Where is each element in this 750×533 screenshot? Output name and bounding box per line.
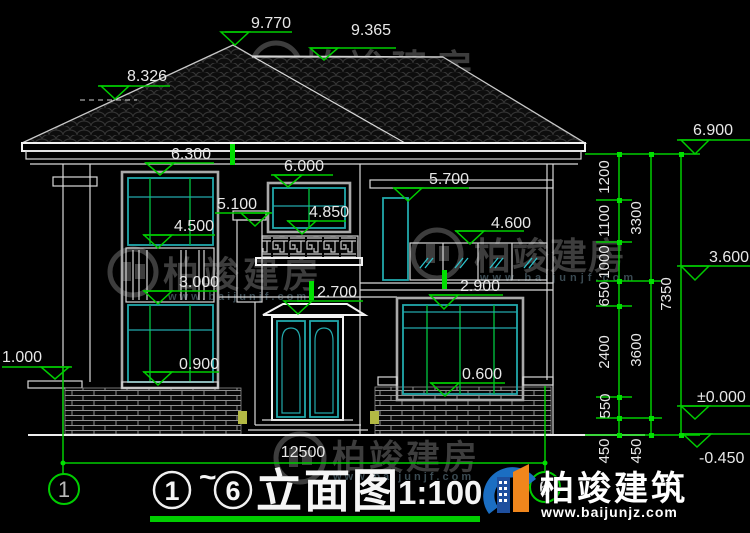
level-tick [230,144,235,165]
elevation-label: 9.770 [251,15,291,32]
axis-number-left: 1 [58,477,70,502]
elevation-label: 9.365 [351,22,391,39]
level-tick [309,281,314,300]
elevation-label: 0.600 [462,366,502,383]
drawing-title: 立面图 [256,465,400,517]
elevation-label: 4.600 [491,215,531,232]
dim-label: 1000 [596,245,613,278]
brick-plinth-left [65,388,241,434]
dim-label: 450 [628,438,645,463]
logo-building-orange-icon [513,464,529,512]
dim-label: 3300 [628,201,645,234]
elevation-label: 6.300 [171,146,211,163]
dim-label: 650 [596,281,613,306]
drawing-scale: 1:100 [398,474,482,511]
elevation-label: 5.700 [429,171,469,188]
balcony-railing [262,236,358,258]
elevation-label: 4.500 [174,218,214,235]
dim-label: 550 [597,393,614,418]
logo-url-text: www.baijunjz.com [540,504,678,520]
logo-building-blue-icon [497,477,510,513]
drawing-canvas: 柏竣建房 www.baijunjf.com 柏竣建房 www.baijunjf.… [0,0,750,533]
elevation-label: 4.850 [309,204,349,221]
elevation-label: 5.100 [217,196,257,213]
dim-label: 3600 [628,333,645,366]
cad-elevation-drawing: 柏竣建房 www.baijunjf.com 柏竣建房 www.baijunjf.… [0,0,750,533]
title-axis-end: 6 [225,476,240,506]
elevation-label: 3.600 [709,249,749,266]
base-post-right [370,411,379,424]
dim-label: 2400 [596,335,613,368]
title-axis-start: 1 [164,476,179,506]
dim-label: 7350 [658,277,675,310]
level-tick [442,270,447,289]
elevation-label: 2.900 [460,278,500,295]
elevation-label: 2.700 [317,284,357,301]
brand-logo: 柏竣建筑 www.baijunjz.com [483,464,688,520]
elevation-label: 1.000 [2,349,42,366]
elevation-label: 6.000 [284,158,324,175]
elevation-label: -0.450 [699,450,744,467]
elevation-label: 6.900 [693,122,733,139]
base-post-left [238,411,247,424]
dim-label: 1100 [596,205,613,237]
elevation-label: ±0.000 [697,389,746,406]
dim-label: 1200 [596,160,613,193]
dim-label: 450 [596,438,613,463]
elevation-label: 8.326 [127,68,167,85]
logo-brand-text: 柏竣建筑 [540,469,688,508]
total-width-label: 12500 [281,444,326,461]
elevation-label: 0.900 [179,356,219,373]
title-underline [150,516,480,522]
watermark-url: www.baijunjf.com [479,272,637,284]
elevation-label: 3.000 [179,274,219,291]
